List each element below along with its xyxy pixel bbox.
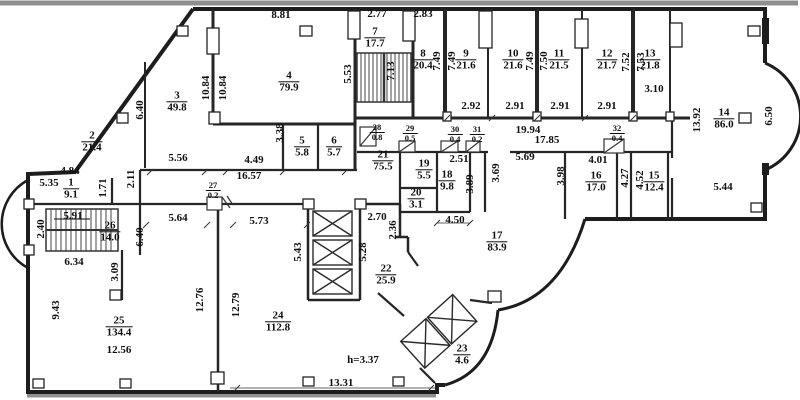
dimension-label: 8.81 [271, 9, 290, 21]
dimension-label: 4.49 [244, 154, 263, 166]
dimension-label: 5.35 [39, 177, 58, 189]
dimension-label: 2.51 [449, 153, 468, 165]
room-area: 0.4 [610, 134, 625, 143]
room-area: 12.4 [643, 183, 664, 194]
dimension-label: 3.38 [274, 123, 286, 142]
room-area: 5.8 [294, 148, 310, 159]
dimension-label: 1.71 [97, 178, 109, 197]
room-label-21: 2175.5 [372, 149, 393, 172]
room-label-29: 290.5 [403, 124, 418, 142]
room-label-20: 203.1 [408, 187, 425, 210]
room-area: 0.2 [470, 135, 485, 144]
dimension-label: 7.13 [385, 61, 397, 80]
dimension-label: 16.57 [237, 170, 262, 182]
room-area: 5.7 [326, 148, 342, 159]
dimension-label: 5.69 [515, 151, 534, 163]
room-area: 9.8 [439, 182, 456, 193]
room-area: 0.4 [448, 135, 463, 144]
room-area: 25.9 [375, 276, 396, 287]
dimension-label: 12.79 [230, 293, 242, 318]
dimension-label: 5.53 [342, 64, 354, 83]
dimension-label: 4.50 [445, 214, 464, 226]
room-label-24: 24112.8 [265, 310, 291, 333]
dimension-label: 13.31 [329, 377, 354, 389]
room-label-15: 1512.4 [643, 170, 664, 193]
dimension-label: 5.64 [168, 212, 187, 224]
dimension-label: 2.92 [461, 100, 480, 112]
room-label-26: 2614.0 [99, 220, 120, 243]
room-label-22: 2225.9 [375, 263, 396, 286]
room-area: 4.6 [454, 356, 471, 367]
room-area: 21.5 [548, 61, 569, 72]
room-area: 9.1 [63, 190, 79, 201]
dimension-label: 5.56 [168, 152, 187, 164]
room-label-3: 349.8 [166, 90, 187, 113]
room-area: 79.9 [278, 83, 299, 94]
room-area: 3.1 [408, 200, 425, 211]
dimension-label: 2.36 [387, 220, 399, 239]
room-label-27: 270.2 [206, 181, 221, 199]
dimension-label: 9.43 [50, 300, 62, 319]
labels-layer: 19.1221.4349.8479.955.865.7717.7820.4921… [0, 0, 800, 400]
room-area: 21.4 [81, 143, 102, 154]
dimension-label: 17.85 [535, 134, 560, 146]
dimension-label: 4.52 [634, 170, 646, 189]
room-area: 21.7 [596, 61, 617, 72]
room-label-5: 55.8 [294, 135, 310, 158]
dimension-label: 7.49 [431, 51, 443, 70]
room-area: 75.5 [372, 162, 393, 173]
dimension-label: 3.89 [464, 174, 476, 193]
room-label-23: 234.6 [454, 343, 471, 366]
room-area: 83.9 [486, 243, 507, 254]
room-label-25: 25134.4 [106, 315, 133, 338]
dimension-label: 2.11 [125, 170, 137, 189]
dimension-label: 2.91 [550, 100, 569, 112]
dimension-label: 6.50 [763, 106, 775, 125]
dimension-label: 7.50 [538, 51, 550, 70]
room-area: 0.2 [206, 191, 221, 200]
dimension-label: 6.40 [134, 227, 146, 246]
dimension-label: 12.76 [194, 288, 206, 313]
dimension-label: 5.28 [357, 242, 369, 261]
dimension-label: 3.10 [644, 83, 663, 95]
room-label-16: 1617.0 [585, 170, 606, 193]
dimension-label: 13.92 [691, 108, 703, 133]
room-label-18: 189.8 [439, 169, 456, 192]
dimension-label: 2.40 [35, 219, 47, 238]
room-label-7: 717.7 [364, 26, 385, 49]
room-area: 21.6 [455, 61, 476, 72]
dimension-label: 7.52 [620, 52, 632, 71]
room-label-14: 1486.0 [713, 107, 734, 130]
room-area: 134.4 [106, 328, 133, 339]
room-area: 17.0 [585, 183, 606, 194]
room-area: 49.8 [166, 103, 187, 114]
dimension-label: 2.77 [367, 8, 386, 20]
dimension-label: 4.27 [619, 168, 631, 187]
floor-plan: 19.1221.4349.8479.955.865.7717.7820.4921… [0, 0, 800, 400]
dimension-label: 2.91 [597, 100, 616, 112]
room-label-11: 1121.5 [548, 48, 569, 71]
dimension-label: 4.84 [60, 165, 79, 177]
dimension-label: 2.91 [505, 100, 524, 112]
room-area: 0.8 [370, 133, 385, 142]
dimension-label: 3.69 [490, 163, 502, 182]
room-label-10: 1021.6 [502, 48, 523, 71]
room-label-1: 19.1 [63, 177, 79, 200]
dimension-label: 5.44 [713, 181, 732, 193]
dimension-label: 12.56 [107, 344, 132, 356]
room-label-17: 1783.9 [486, 230, 507, 253]
dimension-label: 6.34 [64, 256, 83, 268]
dimension-label: 6.40 [134, 100, 146, 119]
room-area: 112.8 [265, 323, 291, 334]
room-area: 17.7 [364, 39, 385, 50]
dimension-label: 3.09 [109, 262, 121, 281]
room-label-6: 65.7 [326, 135, 342, 158]
room-area: 0.5 [403, 134, 418, 143]
room-label-4: 479.9 [278, 70, 299, 93]
room-label-19: 195.5 [416, 158, 433, 181]
room-label-32: 320.4 [610, 124, 625, 142]
dimension-label: 5.73 [249, 215, 268, 227]
room-label-12: 1221.7 [596, 48, 617, 71]
dimension-label: 5.43 [292, 242, 304, 261]
dimension-label: h=3.37 [347, 354, 379, 366]
room-area: 86.0 [713, 120, 734, 131]
dimension-label: 3.98 [555, 166, 567, 185]
dimension-label: 5.91 [63, 210, 82, 222]
dimension-label: 2.70 [367, 211, 386, 223]
room-area: 21.6 [502, 61, 523, 72]
dimension-label: 10.84 [217, 76, 229, 101]
dimension-label: 7.49 [524, 51, 536, 70]
room-label-9: 921.6 [455, 48, 476, 71]
room-area: 5.5 [416, 171, 433, 182]
room-label-30: 300.4 [448, 125, 463, 143]
dimension-label: 4.01 [588, 154, 607, 166]
dimension-label: 2.83 [413, 8, 432, 20]
dimension-label: 7.53 [635, 52, 647, 71]
dimension-label: 7.49 [446, 51, 458, 70]
room-label-28: 280.8 [370, 123, 385, 141]
room-label-2: 221.4 [81, 130, 102, 153]
dimension-label: 10.84 [200, 76, 212, 101]
room-area: 14.0 [99, 233, 120, 244]
room-label-31: 310.2 [470, 125, 485, 143]
